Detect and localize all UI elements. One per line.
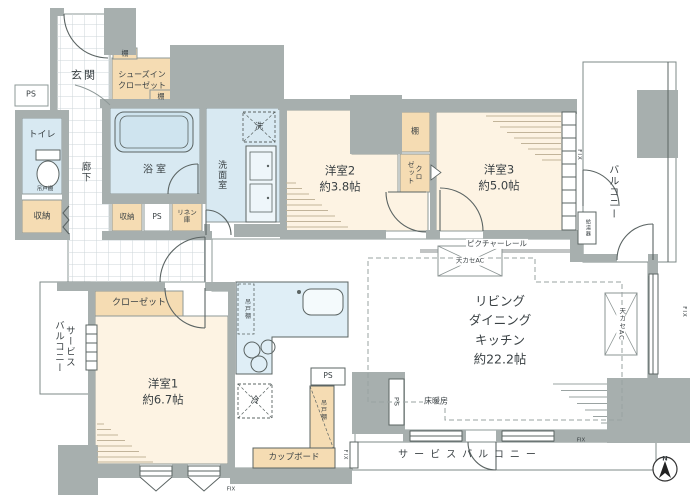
hanging-cupboard-label-cupboard: 吊戸棚 xyxy=(319,400,326,421)
bedroom3-size: 約5.0帖 xyxy=(478,178,519,194)
ldk-name: リビング ダイニング キッチン xyxy=(469,293,532,347)
floor-heating-label: 床暖房 xyxy=(423,397,449,408)
cupboard-label: カップボード xyxy=(268,452,319,463)
bedroom2-size: 約3.8帖 xyxy=(319,179,360,195)
ps-label-mid: PS xyxy=(152,212,161,222)
compass-north-label: N xyxy=(662,455,667,464)
toilet-label: トイレ xyxy=(28,129,55,141)
fix-label-bedroom3: FIX xyxy=(576,149,582,161)
bedroom1-label: 洋室1約6.7帖 xyxy=(142,376,183,407)
entrance-label: 玄関 xyxy=(71,69,97,84)
ceiling-ac-label-2: 天カセAC xyxy=(616,307,625,340)
hanging-cupboard-label-kitchen: 吊戸棚 xyxy=(243,299,250,320)
ps-label-ldk: PS xyxy=(392,397,399,407)
ceiling-ac-label-1: 天カセAC xyxy=(455,257,485,266)
bedroom2-label: 洋室2約3.8帖 xyxy=(319,163,360,194)
bathroom-label: 浴室 xyxy=(143,163,169,177)
balcony-label: バルコニー xyxy=(606,165,618,220)
ps-label-topleft: PS xyxy=(26,90,36,101)
storage-label-2: 収納 xyxy=(120,212,135,222)
water-heater-label: 給湯器 xyxy=(584,219,590,237)
shelf-label-3: 棚 xyxy=(411,127,419,138)
floor-plan: 玄関 シューズイン クローゼット 棚 棚 棚 PS トイレ 吊戸棚 浴室 洗面室… xyxy=(0,0,693,500)
closet-label-b3: クロ ゼット xyxy=(407,161,423,185)
washroom-label: 洗面室 xyxy=(216,160,226,190)
hanging-cupboard-label-toilet: 吊戸棚 xyxy=(37,186,54,193)
ldk-size: 約22.2帖 xyxy=(469,349,532,368)
ps-label-kitchen: PS xyxy=(323,371,332,381)
storage-label-1: 収納 xyxy=(33,211,50,222)
picture-rail-label: ピクチャーレール xyxy=(466,239,528,249)
shelf-label-2: 棚 xyxy=(158,92,165,101)
fix-label-bedroom1: FIX xyxy=(227,486,236,493)
shelf-label-1: 棚 xyxy=(122,49,129,58)
bedroom1-size: 約6.7帖 xyxy=(142,392,183,408)
bedroom3-label: 洋室3約5.0帖 xyxy=(478,162,519,193)
shoes-closet-label: シューズイン クローゼット xyxy=(118,70,166,92)
service-balcony-bottom-label: サービスバルコニー xyxy=(398,448,542,462)
hallway-label: 廊下 xyxy=(79,162,90,183)
bedroom2-name: 洋室2 xyxy=(325,163,355,177)
fix-label-ldk-bottom: FIX xyxy=(577,437,586,444)
bedroom3-name: 洋室3 xyxy=(484,162,514,176)
fix-label-right: FIX xyxy=(681,306,687,318)
ldk-label: リビング ダイニング キッチン約22.2帖 xyxy=(469,291,532,369)
fridge-space-label: 冷 xyxy=(250,395,259,407)
fix-label-service-balcony: FIX xyxy=(341,450,347,461)
bedroom1-name: 洋室1 xyxy=(148,376,178,390)
floorplan-canvas xyxy=(0,0,693,500)
linen-storage-label: リネン 庫 xyxy=(177,210,197,225)
closet-label-b1: クローゼット xyxy=(112,297,166,309)
washer-space-label: 洗 xyxy=(255,122,263,133)
service-balcony-left-label: サービス バルコニー xyxy=(52,321,74,374)
